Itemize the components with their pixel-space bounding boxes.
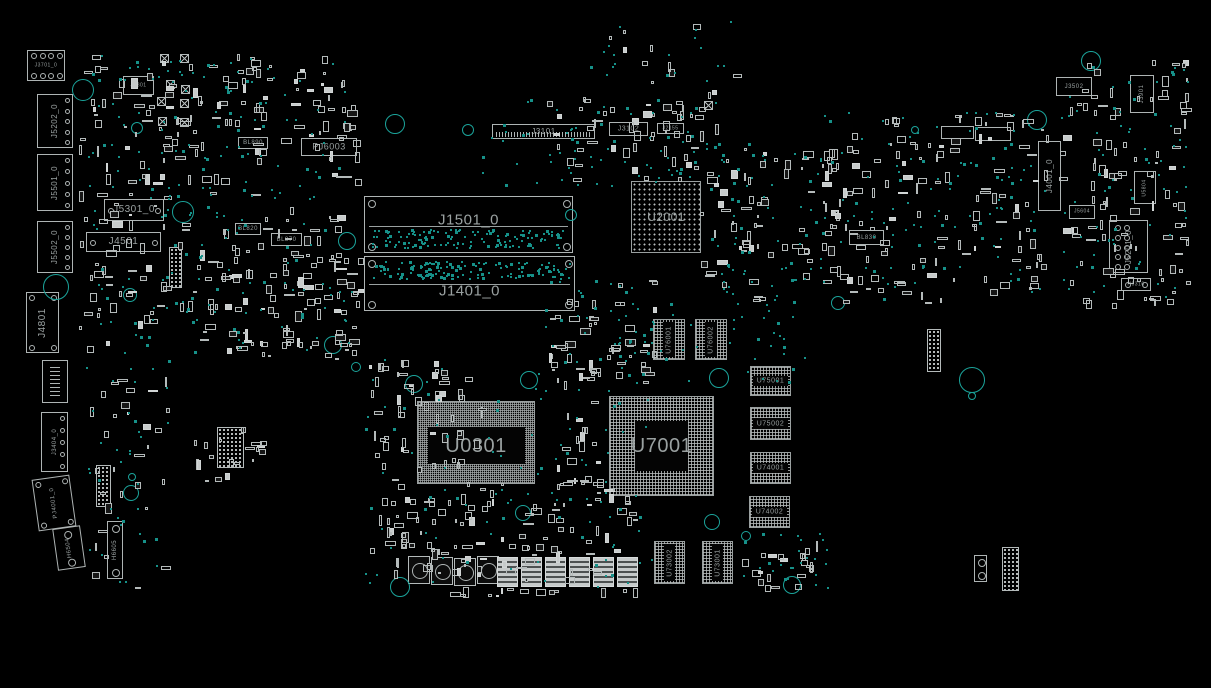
test-point-dot — [451, 278, 453, 280]
smd-part — [642, 61, 648, 66]
test-point-dot — [1163, 188, 1165, 190]
component-h6605[interactable]: H6605 — [107, 521, 123, 579]
test-point-dot — [613, 140, 616, 143]
smd-part — [1130, 244, 1132, 249]
test-point-dot — [748, 251, 751, 254]
component-u73002[interactable]: U73002 — [654, 541, 685, 584]
smd-part — [501, 483, 504, 486]
smd-part — [390, 532, 392, 536]
test-point-dot — [557, 233, 559, 235]
test-point-dot — [723, 281, 725, 283]
component-u74002[interactable]: U74002 — [749, 496, 790, 528]
component-j4001_0[interactable]: J4001_0 — [1038, 141, 1061, 211]
smd-part — [1091, 95, 1098, 99]
test-point-dot — [634, 352, 636, 354]
test-point-dot — [166, 276, 169, 279]
test-point-dot — [201, 244, 203, 246]
test-point-dot — [260, 155, 262, 157]
test-point-dot — [975, 164, 978, 167]
test-point-dot — [1004, 147, 1007, 150]
test-point-dot — [551, 231, 553, 233]
smd-part — [229, 119, 232, 126]
smd-part — [1172, 291, 1176, 294]
test-point-dot — [237, 71, 239, 73]
smd-part — [205, 277, 212, 281]
pin-ring-icon — [368, 200, 376, 208]
test-point-dot — [274, 197, 276, 199]
smd-part — [387, 518, 390, 525]
smd-part — [757, 215, 759, 218]
test-point-dot — [482, 172, 484, 174]
test-point-dot — [475, 265, 477, 267]
test-point-dot — [92, 73, 95, 76]
test-point-dot — [503, 124, 506, 127]
smd-part — [217, 262, 223, 268]
component-j4801[interactable]: J4801 — [26, 292, 59, 353]
smd-part — [232, 274, 242, 278]
component-u76001[interactable]: U76001 — [653, 319, 685, 360]
smd-part — [809, 568, 814, 572]
test-point-dot — [737, 200, 740, 203]
test-point-dot — [491, 137, 493, 139]
test-point-dot — [171, 272, 173, 274]
test-point-dot — [815, 574, 817, 576]
test-point-dot — [394, 246, 396, 248]
smd-part — [999, 194, 1006, 198]
smd-part — [686, 162, 692, 168]
test-point-dot — [138, 112, 140, 114]
test-point-dot — [809, 180, 812, 183]
smd-part — [128, 270, 137, 272]
smd-part — [579, 107, 583, 111]
test-point-dot — [168, 198, 170, 200]
smd-part — [141, 95, 152, 97]
test-point-dot — [1179, 139, 1181, 141]
test-point-dot — [1068, 288, 1070, 290]
pin-ring-icon — [60, 464, 65, 469]
smd-part — [296, 88, 299, 91]
smd-part — [165, 92, 174, 98]
test-point-dot — [521, 266, 524, 269]
test-point-dot — [385, 261, 387, 263]
smd-part — [632, 167, 638, 174]
test-point-dot — [230, 62, 232, 64]
smd-part — [921, 292, 923, 300]
test-point-dot — [723, 161, 725, 163]
mounting-hole — [462, 124, 474, 136]
smd-part — [145, 507, 148, 510]
test-point-dot — [393, 428, 396, 431]
test-point-dot — [688, 380, 690, 382]
test-point-dot — [959, 266, 961, 268]
smd-part — [700, 212, 704, 216]
component-bl820[interactable]: BL820 — [235, 223, 261, 235]
test-point-dot — [1174, 287, 1176, 289]
smd-part — [399, 373, 408, 376]
smd-part — [816, 541, 818, 552]
smd-part — [567, 458, 577, 465]
test-point-dot — [373, 236, 375, 238]
smd-part — [172, 139, 178, 146]
fiducial-x-icon — [180, 54, 189, 63]
test-point-dot — [1091, 266, 1094, 269]
test-point-dot — [464, 236, 466, 238]
smd-part — [554, 133, 560, 136]
test-point-dot — [429, 496, 432, 499]
test-point-dot — [226, 146, 228, 148]
test-point-dot — [1069, 96, 1071, 98]
component-j3701_0[interactable]: J3701_0 — [27, 50, 65, 81]
component-j3101[interactable]: J3101 — [492, 124, 595, 139]
smd-part — [416, 517, 419, 523]
smd-part — [383, 442, 389, 451]
smd-part — [482, 506, 488, 512]
smd-part — [180, 303, 184, 312]
component-label: PJ4001_0 — [49, 487, 59, 519]
test-point-dot — [387, 237, 389, 239]
test-point-dot — [647, 399, 649, 401]
smd-part — [97, 146, 99, 157]
test-point-dot — [829, 120, 832, 123]
smd-part — [496, 595, 499, 597]
test-point-dot — [192, 321, 195, 324]
smd-part — [157, 305, 165, 307]
test-point-dot — [784, 578, 787, 581]
test-point-dot — [207, 64, 210, 67]
smd-part — [587, 126, 594, 131]
smd-part — [323, 72, 326, 75]
smd-part — [847, 146, 853, 153]
test-point-dot — [568, 277, 570, 279]
test-point-dot — [88, 468, 90, 470]
test-point-dot — [909, 136, 911, 138]
component-label: J5604 — [1074, 210, 1090, 215]
test-point-dot — [1130, 189, 1132, 191]
smd-part — [347, 282, 355, 289]
component-j3901[interactable]: J3901 — [1130, 75, 1154, 113]
smd-part — [129, 214, 132, 216]
test-point-dot — [1063, 251, 1065, 253]
smd-part — [411, 389, 414, 395]
fiducial-x-icon — [180, 99, 189, 108]
smd-part — [415, 397, 422, 406]
smd-part — [154, 205, 157, 207]
test-point-dot — [650, 167, 652, 169]
test-point-dot — [631, 287, 633, 289]
test-point-dot — [88, 156, 90, 158]
smd-part — [897, 282, 906, 286]
smd-part — [808, 191, 815, 193]
smd-part — [925, 302, 932, 304]
smd-part — [1137, 96, 1140, 102]
test-point-dot — [414, 234, 416, 236]
test-point-dot — [1185, 217, 1187, 219]
smd-part — [1077, 103, 1082, 106]
test-point-dot — [238, 227, 240, 229]
test-point-dot — [207, 206, 210, 209]
test-point-dot — [841, 152, 843, 154]
test-point-dot — [545, 309, 548, 312]
test-point-dot — [445, 232, 447, 234]
test-point-dot — [510, 276, 512, 278]
component-h6504[interactable]: H6504 — [52, 525, 86, 570]
test-point-dot — [792, 316, 794, 318]
smd-part — [1092, 196, 1095, 204]
smd-part — [715, 124, 719, 135]
component-j1401_0[interactable]: J1401_0 — [364, 256, 575, 311]
smd-part — [90, 293, 97, 302]
smd-part — [243, 332, 246, 334]
smd-part — [334, 263, 336, 272]
test-point-dot — [527, 237, 529, 239]
smd-part — [344, 258, 349, 264]
test-point-dot — [639, 562, 641, 564]
smd-part — [252, 459, 254, 462]
test-point-dot — [216, 216, 218, 218]
smd-part — [1086, 239, 1096, 241]
test-point-dot — [553, 268, 555, 270]
test-point-dot — [1074, 201, 1076, 203]
component-label: J5301_0 — [113, 205, 155, 215]
test-point-dot — [894, 286, 896, 288]
test-point-dot — [100, 442, 102, 444]
pin-ring-icon — [65, 98, 70, 103]
smd-part — [464, 564, 466, 567]
test-point-dot — [437, 231, 439, 233]
test-point-dot — [93, 224, 95, 226]
component-j4501[interactable]: J4501 — [86, 232, 161, 252]
smd-part — [623, 589, 627, 593]
smd-part — [1106, 140, 1112, 150]
test-point-dot — [153, 307, 155, 309]
smd-part — [938, 246, 945, 249]
test-point-dot — [214, 311, 216, 313]
component-j5604[interactable]: J5604 — [1069, 205, 1095, 219]
smd-part — [90, 407, 94, 417]
pin-ring-icon — [60, 452, 65, 457]
test-point-dot — [428, 231, 431, 234]
smd-part — [523, 523, 534, 525]
pin-ring-icon — [57, 73, 63, 79]
test-point-dot — [625, 315, 627, 317]
test-point-dot — [524, 263, 526, 265]
test-point-dot — [140, 336, 143, 339]
test-point-dot — [1169, 234, 1171, 236]
component-pj4001_0[interactable]: PJ4001_0 — [32, 475, 77, 532]
smd-part — [452, 458, 456, 463]
smd-part — [95, 263, 99, 266]
test-point-dot — [281, 326, 283, 328]
test-point-dot — [751, 177, 753, 179]
smd-part — [104, 555, 109, 559]
test-point-dot — [101, 268, 104, 271]
smd-part — [617, 362, 626, 365]
test-point-dot — [98, 105, 100, 107]
test-point-dot — [1112, 179, 1114, 181]
smd-part — [427, 542, 432, 549]
smd-part — [902, 291, 912, 295]
smd-part — [256, 69, 261, 78]
smd-part — [585, 427, 588, 434]
smd-part — [396, 558, 399, 567]
smd-part — [1093, 163, 1096, 171]
smd-part — [761, 553, 766, 558]
test-point-dot — [182, 150, 185, 153]
test-point-dot — [934, 241, 936, 243]
component-u74001[interactable]: U74001 — [750, 452, 791, 484]
test-point-dot — [374, 230, 376, 232]
smd-part — [625, 496, 630, 504]
smd-part — [1180, 102, 1187, 109]
smd-part — [478, 408, 487, 411]
smd-part — [784, 169, 789, 179]
mounting-hole — [959, 367, 985, 393]
test-point-dot — [237, 129, 240, 132]
test-point-dot — [682, 141, 684, 143]
smd-part — [694, 166, 699, 170]
smd-part — [195, 149, 198, 157]
smd-part — [114, 203, 119, 206]
test-point-dot — [501, 276, 503, 278]
smd-part — [1137, 278, 1141, 282]
smd-part — [828, 246, 835, 256]
test-point-dot — [1030, 220, 1032, 222]
component-j3502[interactable]: J3502 — [1056, 77, 1092, 96]
test-point-dot — [576, 141, 579, 144]
test-point-dot — [365, 428, 368, 431]
test-point-dot — [822, 232, 825, 235]
component-u7001[interactable]: U7001 — [609, 396, 714, 496]
smd-part — [1019, 231, 1021, 240]
test-point-dot — [486, 521, 488, 523]
test-point-dot — [162, 279, 164, 281]
smd-part — [284, 284, 287, 289]
test-point-dot — [957, 175, 959, 177]
smd-part — [579, 441, 585, 452]
test-point-dot — [644, 341, 646, 343]
component-u76002[interactable]: U76002 — [695, 319, 727, 360]
smd-part — [490, 490, 494, 498]
test-point-dot — [917, 132, 919, 134]
test-point-dot — [381, 528, 383, 530]
smd-part — [649, 280, 657, 282]
test-point-dot — [780, 534, 782, 536]
pin-ring-icon — [51, 345, 57, 351]
smd-part — [1019, 145, 1030, 149]
test-point-dot — [1097, 240, 1099, 242]
test-point-dot — [943, 267, 946, 270]
component-j5502_0[interactable]: J5502_0 — [37, 221, 73, 273]
smd-part — [175, 156, 186, 160]
smd-part — [570, 569, 573, 576]
test-point-dot — [138, 151, 140, 153]
smd-part — [80, 138, 86, 141]
test-point-dot — [804, 357, 806, 359]
test-point-dot — [905, 229, 907, 231]
smd-part — [837, 266, 841, 277]
test-point-dot — [389, 275, 392, 278]
component-u75001[interactable]: U75001 — [750, 366, 791, 396]
smd-part — [396, 515, 399, 518]
test-point-dot — [898, 171, 900, 173]
smd-part — [126, 239, 132, 248]
smd-part — [225, 473, 230, 480]
smd-part — [352, 326, 357, 329]
smd-part — [306, 254, 310, 257]
test-point-dot — [793, 279, 795, 281]
smd-part — [825, 231, 832, 236]
smd-part — [1165, 190, 1170, 199]
test-point-dot — [431, 236, 434, 239]
test-point-dot — [92, 152, 94, 154]
smd-part — [254, 128, 261, 130]
test-point-dot — [442, 557, 444, 559]
test-point-dot — [134, 420, 137, 423]
test-point-dot — [550, 271, 552, 273]
component-pj6003[interactable]: PJ6003 — [301, 138, 357, 156]
component-j3404_0[interactable]: J3404_0 — [41, 412, 68, 472]
test-point-dot — [158, 76, 160, 78]
smd-part — [438, 509, 446, 516]
smd-part — [163, 158, 165, 163]
test-point-dot — [516, 238, 518, 240]
smd-part — [358, 258, 364, 265]
component-j5202_0[interactable]: J5202_0 — [37, 94, 73, 148]
smd-part — [1071, 227, 1078, 234]
component-label: J1501_0 — [438, 213, 499, 228]
test-point-dot — [379, 265, 381, 267]
test-point-dot — [607, 148, 609, 150]
smd-part — [562, 447, 571, 451]
test-point-dot — [771, 285, 773, 287]
smd-part — [551, 362, 558, 368]
test-point-dot — [410, 272, 412, 274]
test-point-dot — [406, 236, 408, 238]
pin-ring-icon — [65, 225, 70, 230]
component-h6316[interactable]: H6316 — [1121, 278, 1151, 291]
test-point-dot — [424, 508, 427, 511]
component-j5501_0[interactable]: J5501_0 — [37, 154, 73, 211]
smd-part — [202, 176, 212, 183]
test-point-dot — [847, 220, 849, 222]
smd-part — [285, 238, 292, 240]
test-point-dot — [529, 230, 531, 232]
component-u73001[interactable]: U73001 — [702, 541, 733, 584]
test-point-dot — [619, 285, 621, 287]
test-point-dot — [800, 562, 802, 564]
smd-part — [840, 274, 849, 280]
test-point-dot — [651, 342, 653, 344]
test-point-dot — [464, 265, 466, 267]
test-point-dot — [495, 264, 497, 266]
test-point-dot — [979, 222, 982, 225]
smd-part — [644, 176, 649, 181]
test-point-dot — [250, 58, 252, 60]
test-point-dot — [606, 74, 608, 76]
test-point-dot — [477, 277, 479, 279]
component-u75002[interactable]: U75002 — [750, 407, 791, 440]
test-point-dot — [94, 210, 96, 212]
smd-part — [212, 117, 221, 119]
test-point-dot — [650, 328, 653, 331]
test-point-dot — [998, 199, 1000, 201]
test-point-dot — [768, 562, 771, 565]
smd-part — [303, 273, 312, 279]
test-point-dot — [482, 273, 484, 275]
smd-part — [245, 447, 255, 450]
component-u2001[interactable]: U2001 — [631, 181, 701, 253]
test-point-dot — [103, 144, 106, 147]
